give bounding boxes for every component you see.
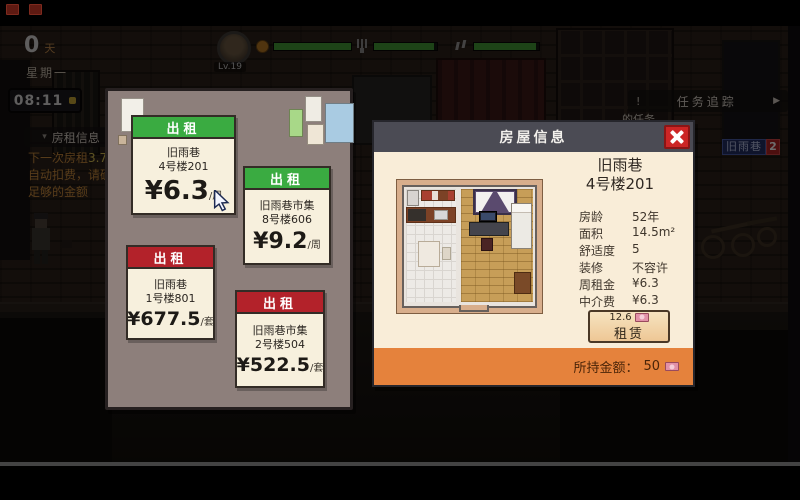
floorplan-kitchen — [406, 189, 456, 302]
detail-value: ¥6.3 — [632, 293, 659, 307]
game-screen: 0 天 星期一 08:11 ▾ 房租信息 下一次房租3.75 自动扣费，请确保 … — [0, 0, 800, 500]
wallet-value: 50 — [643, 359, 660, 374]
detail-label: 房龄 — [579, 208, 603, 225]
listing-tag: 出租 — [237, 292, 323, 314]
detail-label: 中介费 — [579, 293, 615, 310]
pinned-note — [305, 96, 322, 122]
rent-button[interactable]: 12.6 租赁 — [588, 310, 670, 343]
money-icon — [665, 362, 679, 371]
listing-card[interactable]: 出租 旧雨巷 1号楼801 ¥677.5/套 — [126, 245, 215, 340]
close-icon[interactable] — [664, 125, 690, 149]
pinned-note — [289, 109, 303, 137]
listing-price: ¥6.3/周 — [145, 176, 223, 206]
corner-mark — [29, 4, 42, 15]
money-icon — [635, 313, 649, 322]
floorplan-door-gap — [459, 305, 489, 312]
listing-price: ¥522.5/套 — [237, 354, 324, 376]
listing-card[interactable]: 出租 旧雨巷市集 2号楼504 ¥522.5/套 — [235, 290, 325, 388]
pinned-note — [307, 124, 324, 145]
listing-price: ¥677.5/套 — [127, 308, 214, 330]
listing-tag: 出租 — [245, 168, 329, 190]
listing-address: 旧雨巷 1号楼801 — [146, 278, 196, 306]
rent-cost: 12.6 — [609, 312, 631, 323]
listing-address: 旧雨巷 4号楼201 — [159, 146, 209, 174]
mouse-cursor — [213, 190, 231, 212]
corner-mark — [6, 4, 19, 15]
detail-value: ¥6.3 — [632, 276, 659, 290]
pinned-note — [118, 135, 127, 145]
letterbox-top — [0, 0, 800, 26]
listing-address: 旧雨巷市集 2号楼504 — [253, 324, 308, 352]
detail-label: 周租金 — [579, 276, 615, 293]
panel-titlebar: 房屋信息 — [374, 122, 693, 152]
detail-value: 52年 — [632, 208, 659, 225]
rental-listings-panel: 出租 旧雨巷 4号楼201 ¥6.3/周 出租 旧雨巷市集 8号楼606 — [105, 88, 353, 410]
wallet-bar: 所持金额： 50 — [374, 348, 693, 385]
panel-title: 房屋信息 — [500, 127, 568, 147]
pinned-note — [325, 103, 354, 143]
listing-address: 旧雨巷市集 8号楼606 — [260, 199, 315, 227]
listing-price: ¥9.2/周 — [253, 229, 321, 254]
floorplan-bedroom — [461, 189, 533, 302]
house-title: 旧雨巷 4号楼201 — [554, 156, 686, 194]
wallet-label: 所持金额： — [573, 357, 638, 376]
detail-value: 14.5m² — [632, 225, 675, 239]
rent-button-label: 租赁 — [614, 323, 644, 342]
detail-label: 面积 — [579, 225, 603, 242]
letterbox-bottom — [0, 462, 800, 500]
detail-value: 不容许 — [632, 259, 668, 276]
house-info-panel: 房屋信息 — [372, 120, 695, 387]
floorplan-image — [396, 179, 543, 314]
detail-label: 舒适度 — [579, 242, 615, 259]
listing-tag: 出租 — [133, 117, 234, 139]
detail-value: 5 — [632, 242, 640, 256]
detail-label: 装修 — [579, 259, 603, 276]
listing-tag: 出租 — [128, 247, 213, 269]
listing-card[interactable]: 出租 旧雨巷市集 8号楼606 ¥9.2/周 — [243, 166, 331, 265]
